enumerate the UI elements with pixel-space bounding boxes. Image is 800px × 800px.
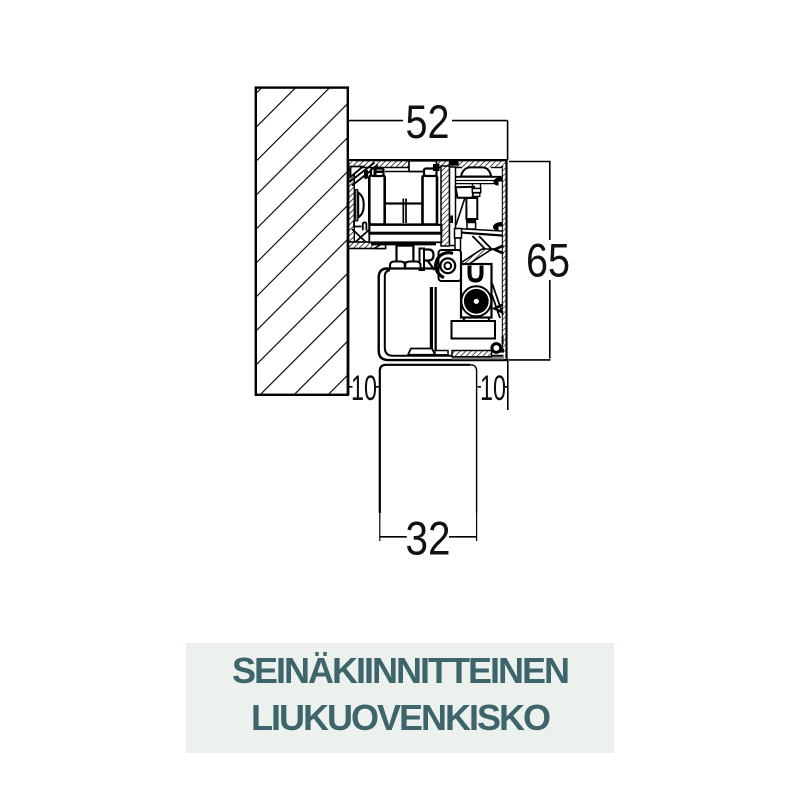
svg-text:10: 10 — [480, 369, 506, 408]
svg-text:52: 52 — [406, 95, 450, 148]
svg-text:65: 65 — [526, 234, 570, 287]
svg-text:32: 32 — [406, 512, 451, 565]
svg-text:10: 10 — [351, 369, 377, 408]
